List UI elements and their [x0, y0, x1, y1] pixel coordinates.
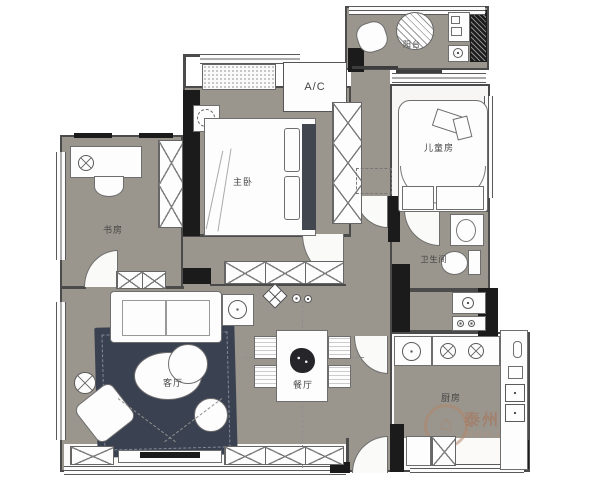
watermark-url-text: www.t	[464, 426, 501, 440]
master-wardrobe	[332, 102, 362, 224]
wall-segment	[183, 54, 186, 88]
master-bed-pillow	[284, 128, 300, 172]
watermark-house-icon: ⌂	[440, 413, 452, 435]
master-bed-headboard	[302, 124, 316, 230]
wall-black	[183, 268, 211, 284]
side-table-lamp	[228, 300, 247, 319]
balcony-cabinet-item	[451, 27, 462, 36]
shoe-cabinet	[224, 446, 344, 465]
ac-label: A/C	[283, 82, 347, 93]
kitchen-low-cabinet	[406, 436, 431, 466]
sink-basin	[456, 219, 476, 242]
balcony-cabinet-item	[451, 16, 460, 24]
master-bed-pillow	[284, 176, 300, 220]
window	[64, 466, 346, 475]
wall-black	[74, 133, 112, 138]
stove-burner	[468, 343, 484, 359]
balcony-sliding-door	[396, 70, 442, 73]
kids-bed-pillow	[402, 186, 434, 210]
kids-room-label: 儿童房	[408, 144, 470, 153]
counter-bottle	[513, 341, 522, 358]
dining-chair	[328, 365, 351, 388]
sofa-cushion	[166, 300, 210, 336]
study-low-cabinet	[116, 271, 166, 289]
wall-black	[392, 264, 410, 332]
tv-screen	[140, 452, 200, 458]
study-chair	[94, 176, 124, 197]
dining-chair	[328, 336, 351, 359]
toilet-tank	[468, 250, 481, 275]
kitchen-label: 厨房	[426, 394, 476, 403]
floor-lamp-icon	[74, 372, 96, 394]
planned-wardrobe-dashed	[356, 168, 392, 194]
dining-room-label: 餐厅	[278, 381, 328, 390]
living-room-label: 客厅	[148, 379, 198, 388]
utility-knob	[468, 320, 475, 327]
balcony-ac-unit	[470, 10, 487, 62]
window	[56, 302, 66, 440]
ceiling-spot-symbol	[304, 295, 312, 303]
dining-chair	[254, 336, 277, 359]
dining-chair	[254, 365, 277, 388]
utility-knob	[457, 320, 464, 327]
balcony-sliding-door	[352, 66, 398, 69]
stove-burner	[440, 343, 456, 359]
ceiling-spot-symbol	[292, 294, 301, 303]
wall-segment	[344, 234, 351, 237]
sofa-cushion	[122, 300, 166, 336]
window	[392, 73, 486, 83]
living-x-cabinet	[70, 446, 114, 465]
utility-washer-drum	[462, 297, 474, 309]
window	[56, 152, 66, 260]
study-wardrobe	[158, 140, 183, 228]
balcony-label: 阳台	[390, 41, 434, 49]
study-label: 书房	[88, 226, 138, 235]
counter-drawer	[505, 404, 525, 422]
bay-window-sill	[202, 64, 276, 90]
kitchen-low-cabinet-x	[431, 436, 456, 466]
counter-box	[508, 366, 523, 379]
desk-lamp-icon	[78, 155, 94, 171]
wall-black	[139, 133, 173, 138]
wall-segment	[60, 286, 86, 289]
kids-bed-pillow	[436, 186, 484, 210]
counter-drawer	[505, 384, 525, 402]
table-centerpiece	[290, 348, 315, 373]
hall-cabinet	[224, 261, 344, 284]
floorplan-image: ⌂ 泰州装 www.t A/C	[0, 0, 600, 489]
master-bedroom-label: 主卧	[218, 178, 268, 187]
kitchen-round-sink	[402, 342, 421, 361]
wall-black	[390, 424, 404, 472]
balcony-washer-drum	[453, 48, 463, 58]
bathroom-label: 卫生间	[408, 256, 460, 264]
